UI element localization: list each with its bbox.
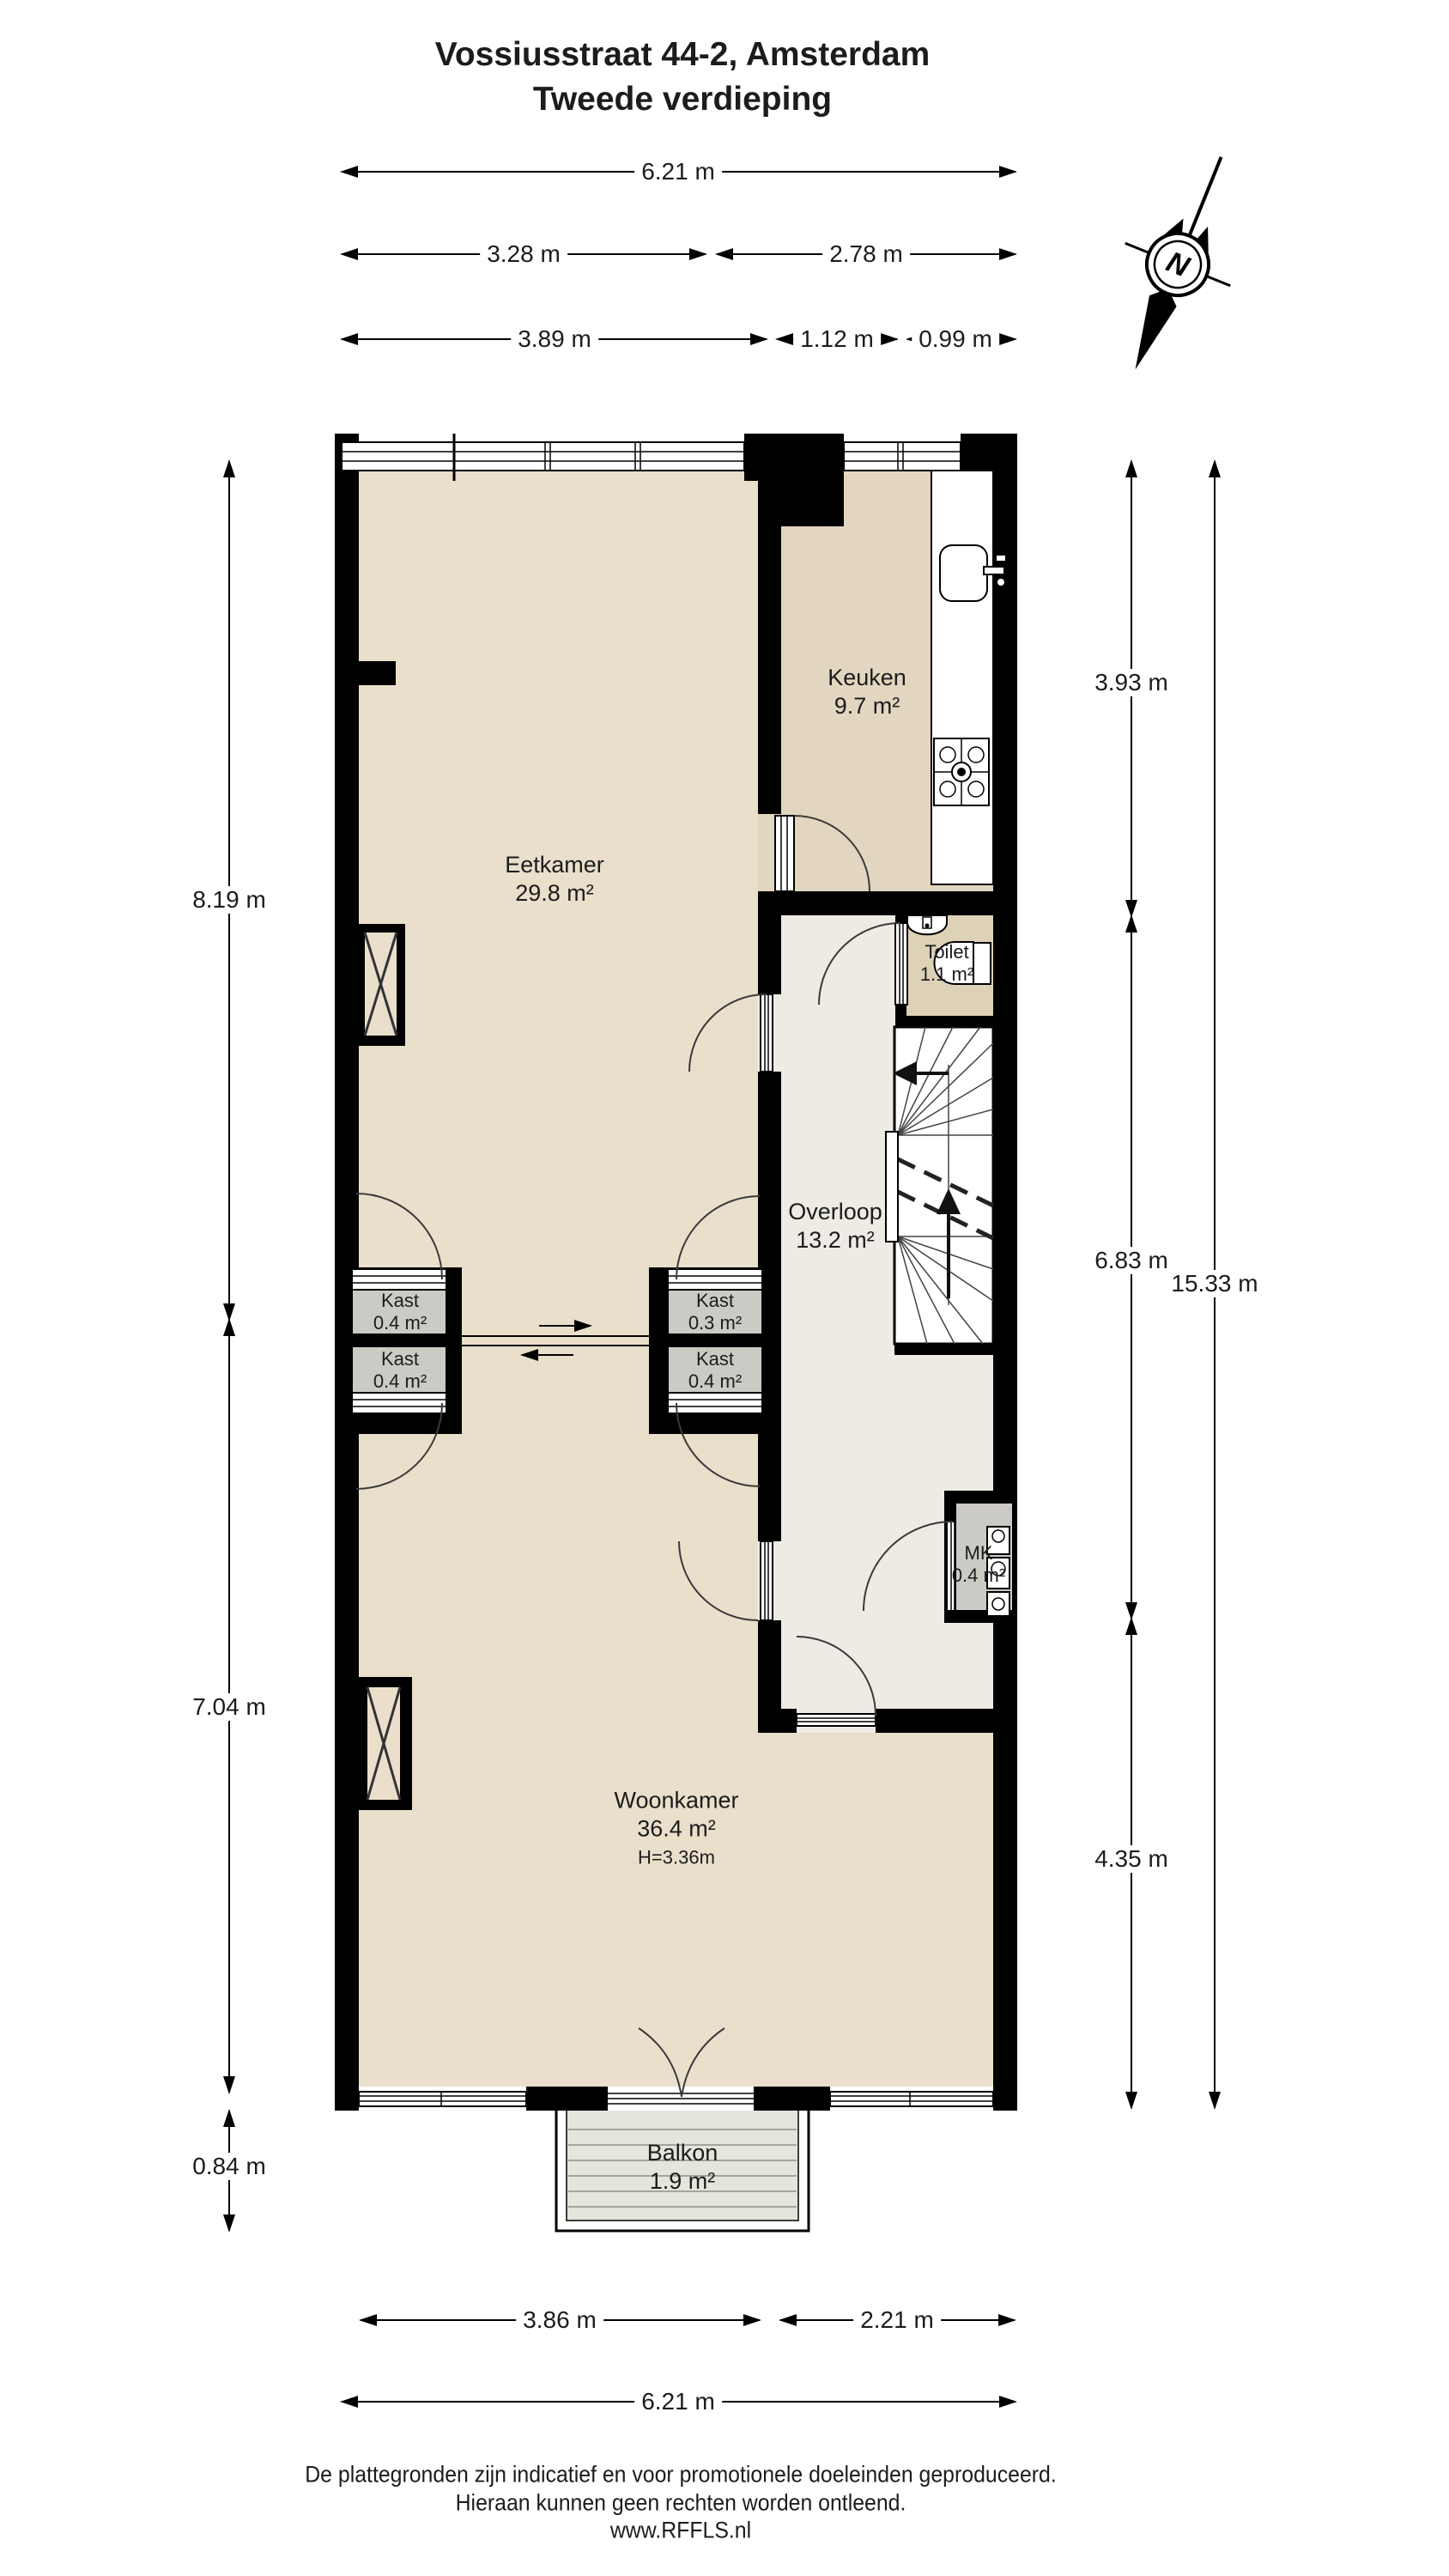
window-top-right	[844, 442, 961, 471]
room-label-keuken: Keuken 9.7 m²	[828, 664, 906, 720]
room-name: Eetkamer	[505, 851, 604, 879]
footer-website: www.RFFLS.nl	[610, 2518, 751, 2544]
dim-top-total: 6.21 m	[634, 158, 722, 185]
dim-top-sub-mid: 1.12 m	[793, 325, 881, 353]
dim-right-total: 15.33 m	[1164, 1270, 1264, 1297]
stove-icon	[934, 738, 989, 805]
room-area: 36.4 m²	[614, 1815, 738, 1844]
dim-right-lower: 4.35 m	[1088, 1845, 1175, 1873]
room-label-overloop: Overloop 13.2 m²	[788, 1198, 882, 1255]
room-label-toilet: Toilet 1.1 m²	[920, 941, 973, 986]
room-name: Balkon	[647, 2139, 718, 2167]
dim-left-lower: 7.04 m	[185, 1693, 273, 1721]
dim-bottom-total: 6.21 m	[634, 2388, 722, 2415]
page-title-line2: Tweede verdieping	[533, 81, 832, 118]
room-label-kast-left-bottom: Kast 0.4 m²	[373, 1348, 427, 1393]
floorplan-page: N Vossiusstraat 44-2, Amsterdam Tweede v…	[0, 0, 1449, 2576]
kitchen-counter	[931, 471, 993, 884]
room-name: Kast	[373, 1290, 427, 1312]
room-label-mk: MK 0.4 m²	[952, 1542, 1005, 1587]
dim-top-sub-left: 3.89 m	[511, 325, 598, 353]
room-area: 0.4 m²	[688, 1370, 742, 1393]
room-label-balkon: Balkon 1.9 m²	[647, 2139, 718, 2196]
room-area: 9.7 m²	[828, 692, 906, 720]
room-label-kast-left-top: Kast 0.4 m²	[373, 1290, 427, 1334]
room-area: 0.3 m²	[688, 1312, 742, 1334]
room-label-kast-mid-bottom: Kast 0.4 m²	[688, 1348, 742, 1393]
room-label-eetkamer: Eetkamer 29.8 m²	[505, 851, 604, 908]
window-bottom-right	[830, 2092, 993, 2106]
room-ceiling-height: H=3.36m	[614, 1844, 738, 1872]
room-name: MK	[952, 1542, 1005, 1564]
room-area: 0.4 m²	[952, 1564, 1005, 1587]
toilet-sink-icon	[907, 915, 947, 934]
room-area: 1.1 m²	[920, 963, 973, 986]
dim-top-sub-right: 0.99 m	[912, 325, 999, 353]
shaft-woonkamer	[335, 1677, 412, 1810]
window-bottom-left	[359, 2092, 526, 2106]
dim-left-balkon: 0.84 m	[185, 2153, 273, 2180]
room-area: 13.2 m²	[788, 1226, 882, 1255]
staircase	[886, 1027, 993, 1344]
dim-right-keuken: 3.93 m	[1088, 669, 1175, 696]
shaft-eetkamer	[335, 924, 405, 1046]
room-name: Woonkamer	[614, 1787, 738, 1815]
dim-bottom-right: 2.21 m	[853, 2306, 941, 2334]
room-area: 0.4 m²	[373, 1312, 427, 1334]
room-name: Kast	[688, 1290, 742, 1312]
room-label-kast-mid-top: Kast 0.3 m²	[688, 1290, 742, 1334]
page-title-line1: Vossiusstraat 44-2, Amsterdam	[435, 36, 931, 74]
north-arrow-icon: N	[1082, 136, 1273, 391]
dim-top-left: 3.28 m	[480, 240, 567, 268]
footer-disclaimer-line1: De plattegronden zijn indicatief en voor…	[305, 2462, 1057, 2488]
room-area: 29.8 m²	[505, 879, 604, 908]
room-area: 1.9 m²	[647, 2167, 718, 2196]
room-name: Kast	[688, 1348, 742, 1370]
room-label-woonkamer: Woonkamer 36.4 m² H=3.36m	[614, 1787, 738, 1872]
dim-bottom-left: 3.86 m	[516, 2306, 603, 2334]
room-name: Kast	[373, 1348, 427, 1370]
room-area: 0.4 m²	[373, 1370, 427, 1393]
dim-top-right: 2.78 m	[822, 240, 910, 268]
room-name: Overloop	[788, 1198, 882, 1226]
room-name: Keuken	[828, 664, 906, 692]
dim-right-mid: 6.83 m	[1088, 1247, 1175, 1274]
dim-left-upper: 8.19 m	[185, 886, 273, 914]
footer-disclaimer-line2: Hieraan kunnen geen rechten worden ontle…	[456, 2490, 906, 2517]
room-name: Toilet	[920, 941, 973, 963]
